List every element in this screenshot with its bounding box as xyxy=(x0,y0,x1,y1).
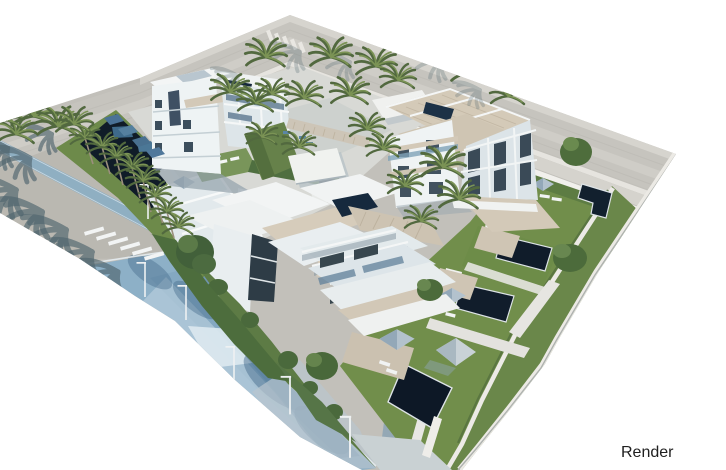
svg-text:Render: Render xyxy=(621,444,674,461)
